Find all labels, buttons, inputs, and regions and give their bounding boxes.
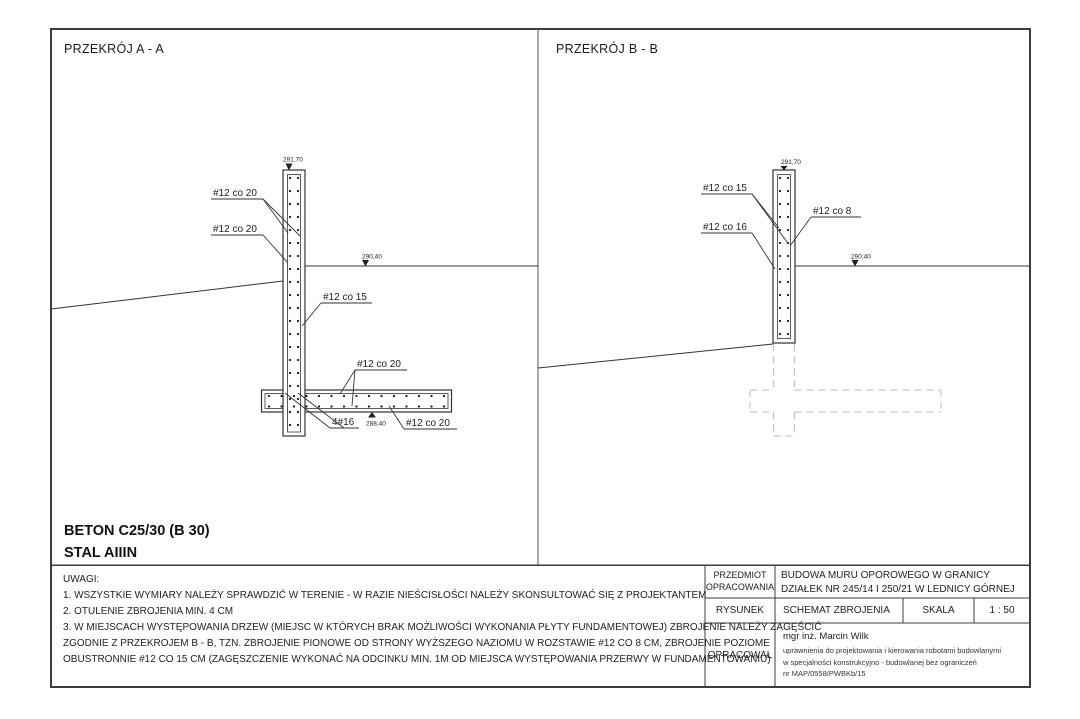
label-wall-dense-b: #12 co 8 xyxy=(790,206,861,246)
rebar-label: #12 co 15 xyxy=(703,183,747,194)
elevation-marker-icon xyxy=(368,412,376,418)
rebar-label: #12 co 20 xyxy=(406,418,450,429)
elevation-top-a: 291,70 xyxy=(283,157,303,171)
section-b-title: PRZEKRÓJ B - B xyxy=(556,42,658,56)
elevation-label: 291,70 xyxy=(781,159,801,166)
hidden-foundation-b xyxy=(750,344,941,436)
author-name: mgr inż. Marcin Wilk xyxy=(783,631,1001,642)
ground-line-left-b xyxy=(538,344,773,368)
rebar-label: #12 co 8 xyxy=(813,206,852,217)
materials-block: BETON C25/30 (B 30) STAL AIIIN xyxy=(64,520,210,564)
elevation-label: 290,40 xyxy=(362,254,382,261)
elevation-label: 290,40 xyxy=(851,254,871,261)
rebar-label: #12 co 20 xyxy=(213,188,257,199)
section-a-drawing: 291,70 290,40 288,40 #12 co 20 #12 co 20 xyxy=(51,157,538,437)
rebar-label: #12 co 16 xyxy=(703,222,747,233)
drawing-label-cell: RYSUNEK xyxy=(705,598,775,623)
rebar-label: 4#16 xyxy=(332,417,355,428)
section-a-title: PRZEKRÓJ A - A xyxy=(64,42,164,56)
author-credential: uprawnienia do projektowania i kierowani… xyxy=(783,645,1001,657)
author-block: mgr inż. Marcin Wilk uprawnienia do proj… xyxy=(783,631,1001,680)
subject-label-cell: PRZEDMIOT OPRACOWANIA xyxy=(705,565,775,598)
rebar-label: #12 co 15 xyxy=(323,292,367,303)
label-wall-back-b: #12 co 16 xyxy=(701,222,775,269)
steel-spec: STAL AIIIN xyxy=(64,542,210,564)
elevation-label: 288,40 xyxy=(366,421,386,428)
drawing-sheet: 291,70 290,40 288,40 #12 co 20 #12 co 20 xyxy=(0,0,1080,719)
subject-line: BUDOWA MURU OPOROWEGO W GRANICY xyxy=(781,569,1015,583)
label-wall-vertical-a: #12 co 15 xyxy=(302,292,372,326)
author-credential: nr MAP/0558/PWBKb/15 xyxy=(783,668,1001,680)
subject-line: DZIAŁEK NR 245/14 I 250/21 W LEDNICY GÓR… xyxy=(781,583,1015,597)
section-b-drawing: 291,70 290,40 #12 co 15 #12 co 8 #12 co … xyxy=(538,159,1030,436)
concrete-spec: BETON C25/30 (B 30) xyxy=(64,520,210,542)
elevation-top-b: 291,70 xyxy=(781,159,802,171)
label-wall-bars-2-a: #12 co 20 xyxy=(211,224,288,263)
scale-label-cell: SKALA xyxy=(903,598,974,623)
rebar-label: #12 co 20 xyxy=(357,359,401,370)
elevation-ground-a: 290,40 xyxy=(362,254,382,267)
scale-value-cell: 1 : 50 xyxy=(974,598,1030,623)
elevation-label: 291,70 xyxy=(283,157,303,164)
elevation-ground-b: 290,40 xyxy=(851,254,871,267)
subject-value: BUDOWA MURU OPOROWEGO W GRANICY DZIAŁEK … xyxy=(781,569,1015,597)
wall-outline-b xyxy=(773,170,795,343)
ground-line-left-a xyxy=(51,281,283,309)
elevation-footing-a: 288,40 xyxy=(366,412,386,428)
author-label-cell: OPRACOWAŁ xyxy=(705,623,775,687)
drawing-value-cell: SCHEMAT ZBROJENIA xyxy=(775,598,903,623)
subject-label-line: OPRACOWANIA xyxy=(706,582,774,594)
rebar-label: #12 co 20 xyxy=(213,224,257,235)
subject-label-line: PRZEDMIOT xyxy=(714,570,767,582)
author-credential: w specjalności konstrukcyjno - budowlane… xyxy=(783,657,1001,669)
